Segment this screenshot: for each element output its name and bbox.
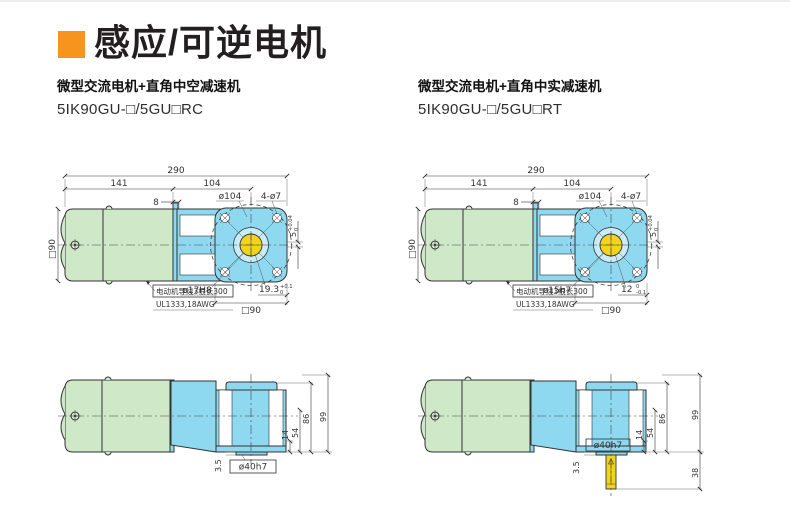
lead-wire-note: 电动机导线3根长300 UL1333,18AWG	[146, 281, 233, 310]
dim-h54: 54	[646, 428, 655, 438]
dim-h99: 99	[691, 410, 700, 420]
dim-motor-length: 141	[110, 179, 127, 189]
corner-hole	[580, 267, 590, 277]
dim-boss: ø40h7	[594, 441, 622, 451]
dim-plate: 3.5	[214, 459, 223, 472]
dim-h86: 86	[302, 414, 311, 424]
corner-hole	[220, 267, 230, 277]
note-line1: 电动机导线3根长300	[516, 286, 588, 296]
dim-frame: □90	[48, 239, 58, 259]
dim-motor-length: 141	[470, 179, 487, 189]
note-line2: UL1333,18AWG	[516, 300, 575, 309]
note-line1: 电动机导线3根长300	[156, 286, 228, 296]
dim-overall: 290	[167, 166, 184, 176]
dim-depth: 12	[621, 285, 632, 295]
dim-h14: 14	[281, 430, 290, 440]
dim-face: □90	[241, 306, 261, 316]
side-view-drawing-left: 14 54 86 99 3.5 ø40h7	[40, 354, 385, 504]
side-view-drawing-right: 14 54 86 99 38 3.5 ø40h7	[400, 354, 745, 504]
label-bolt-circle: ø104	[579, 192, 602, 202]
right-subtitle: 微型交流电机+直角中实减速机	[418, 78, 748, 95]
corner-hole	[632, 213, 642, 223]
dim-gear-length: 104	[563, 179, 580, 189]
right-column-header: 微型交流电机+直角中实减速机 5IK90GU-□/5GU□RT	[418, 78, 748, 118]
label-holes: 4-ø7	[261, 192, 281, 202]
lead-wire-note: 电动机导线3根长300 UL1333,18AWG	[506, 281, 593, 310]
dim-plate: 3.5	[572, 461, 581, 474]
output-flange-boss	[586, 382, 637, 390]
corner-hole	[272, 213, 282, 223]
shaft-boss	[236, 452, 267, 455]
left-column-header: 微型交流电机+直角中空减速机 5IK90GU-□/5GU□RC	[57, 78, 387, 118]
dim-key: 5	[289, 232, 298, 237]
dim-gear-length: 104	[203, 179, 220, 189]
label-bolt-circle: ø104	[219, 192, 242, 202]
dim-step: 8	[153, 198, 159, 208]
dim-key-lower-tol: 0	[654, 228, 660, 231]
dim-shaft-length: 38	[691, 468, 700, 478]
dim-face: □90	[601, 306, 621, 316]
dim-h99: 99	[319, 412, 328, 422]
dim-overall: 290	[527, 166, 544, 176]
dim-step: 8	[513, 198, 519, 208]
dim-key: 5	[649, 232, 658, 237]
accent-square-icon	[58, 31, 85, 58]
top-view-drawing-right: 290 141 104 8 □90	[400, 157, 745, 357]
dim-key-lower-tol: 0	[294, 228, 300, 231]
corner-hole	[632, 267, 642, 277]
left-model-number: 5IK90GU-□/5GU□RC	[57, 101, 387, 118]
dim-h86: 86	[658, 414, 667, 424]
dim-h14: 14	[635, 430, 644, 440]
left-subtitle: 微型交流电机+直角中空减速机	[57, 78, 387, 95]
label-holes: 4-ø7	[621, 192, 641, 202]
dim-boss: ø40h7	[239, 463, 267, 473]
catalog-page: 感应/可逆电机 微型交流电机+直角中空减速机 5IK90GU-□/5GU□RC …	[0, 0, 790, 506]
note-line2: UL1333,18AWG	[156, 300, 215, 309]
dim-depth: 19.3	[259, 285, 279, 295]
page-title: 感应/可逆电机	[94, 22, 327, 64]
dim-frame: □90	[408, 239, 418, 259]
corner-hole	[220, 213, 230, 223]
page-header: 感应/可逆电机	[58, 22, 327, 64]
corner-hole	[580, 213, 590, 223]
dim-h54: 54	[291, 428, 300, 438]
right-model-number: 5IK90GU-□/5GU□RT	[418, 101, 748, 118]
corner-hole	[272, 267, 282, 277]
shaft-boss	[596, 452, 627, 455]
top-view-drawing-left: 290 141 104 8 □90	[40, 157, 385, 357]
output-flange-boss	[226, 382, 277, 390]
